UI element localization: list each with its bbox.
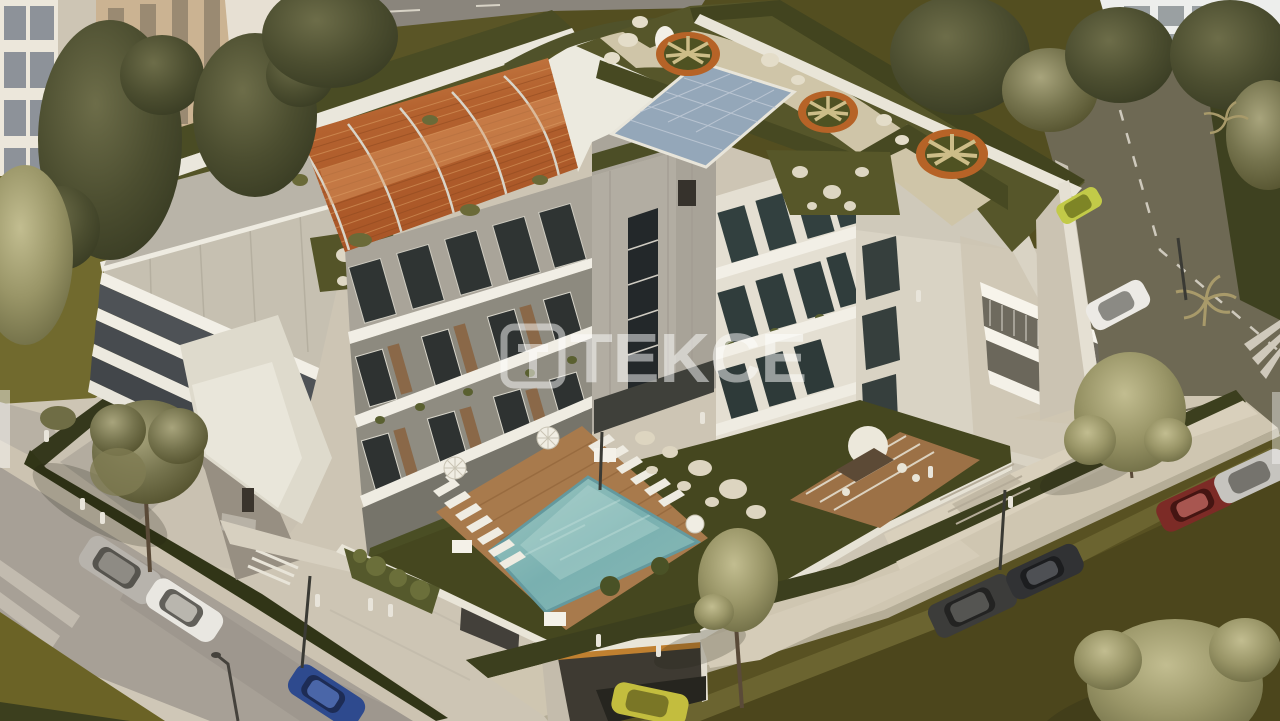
svg-text:TEKCE: TEKCE xyxy=(570,319,807,397)
